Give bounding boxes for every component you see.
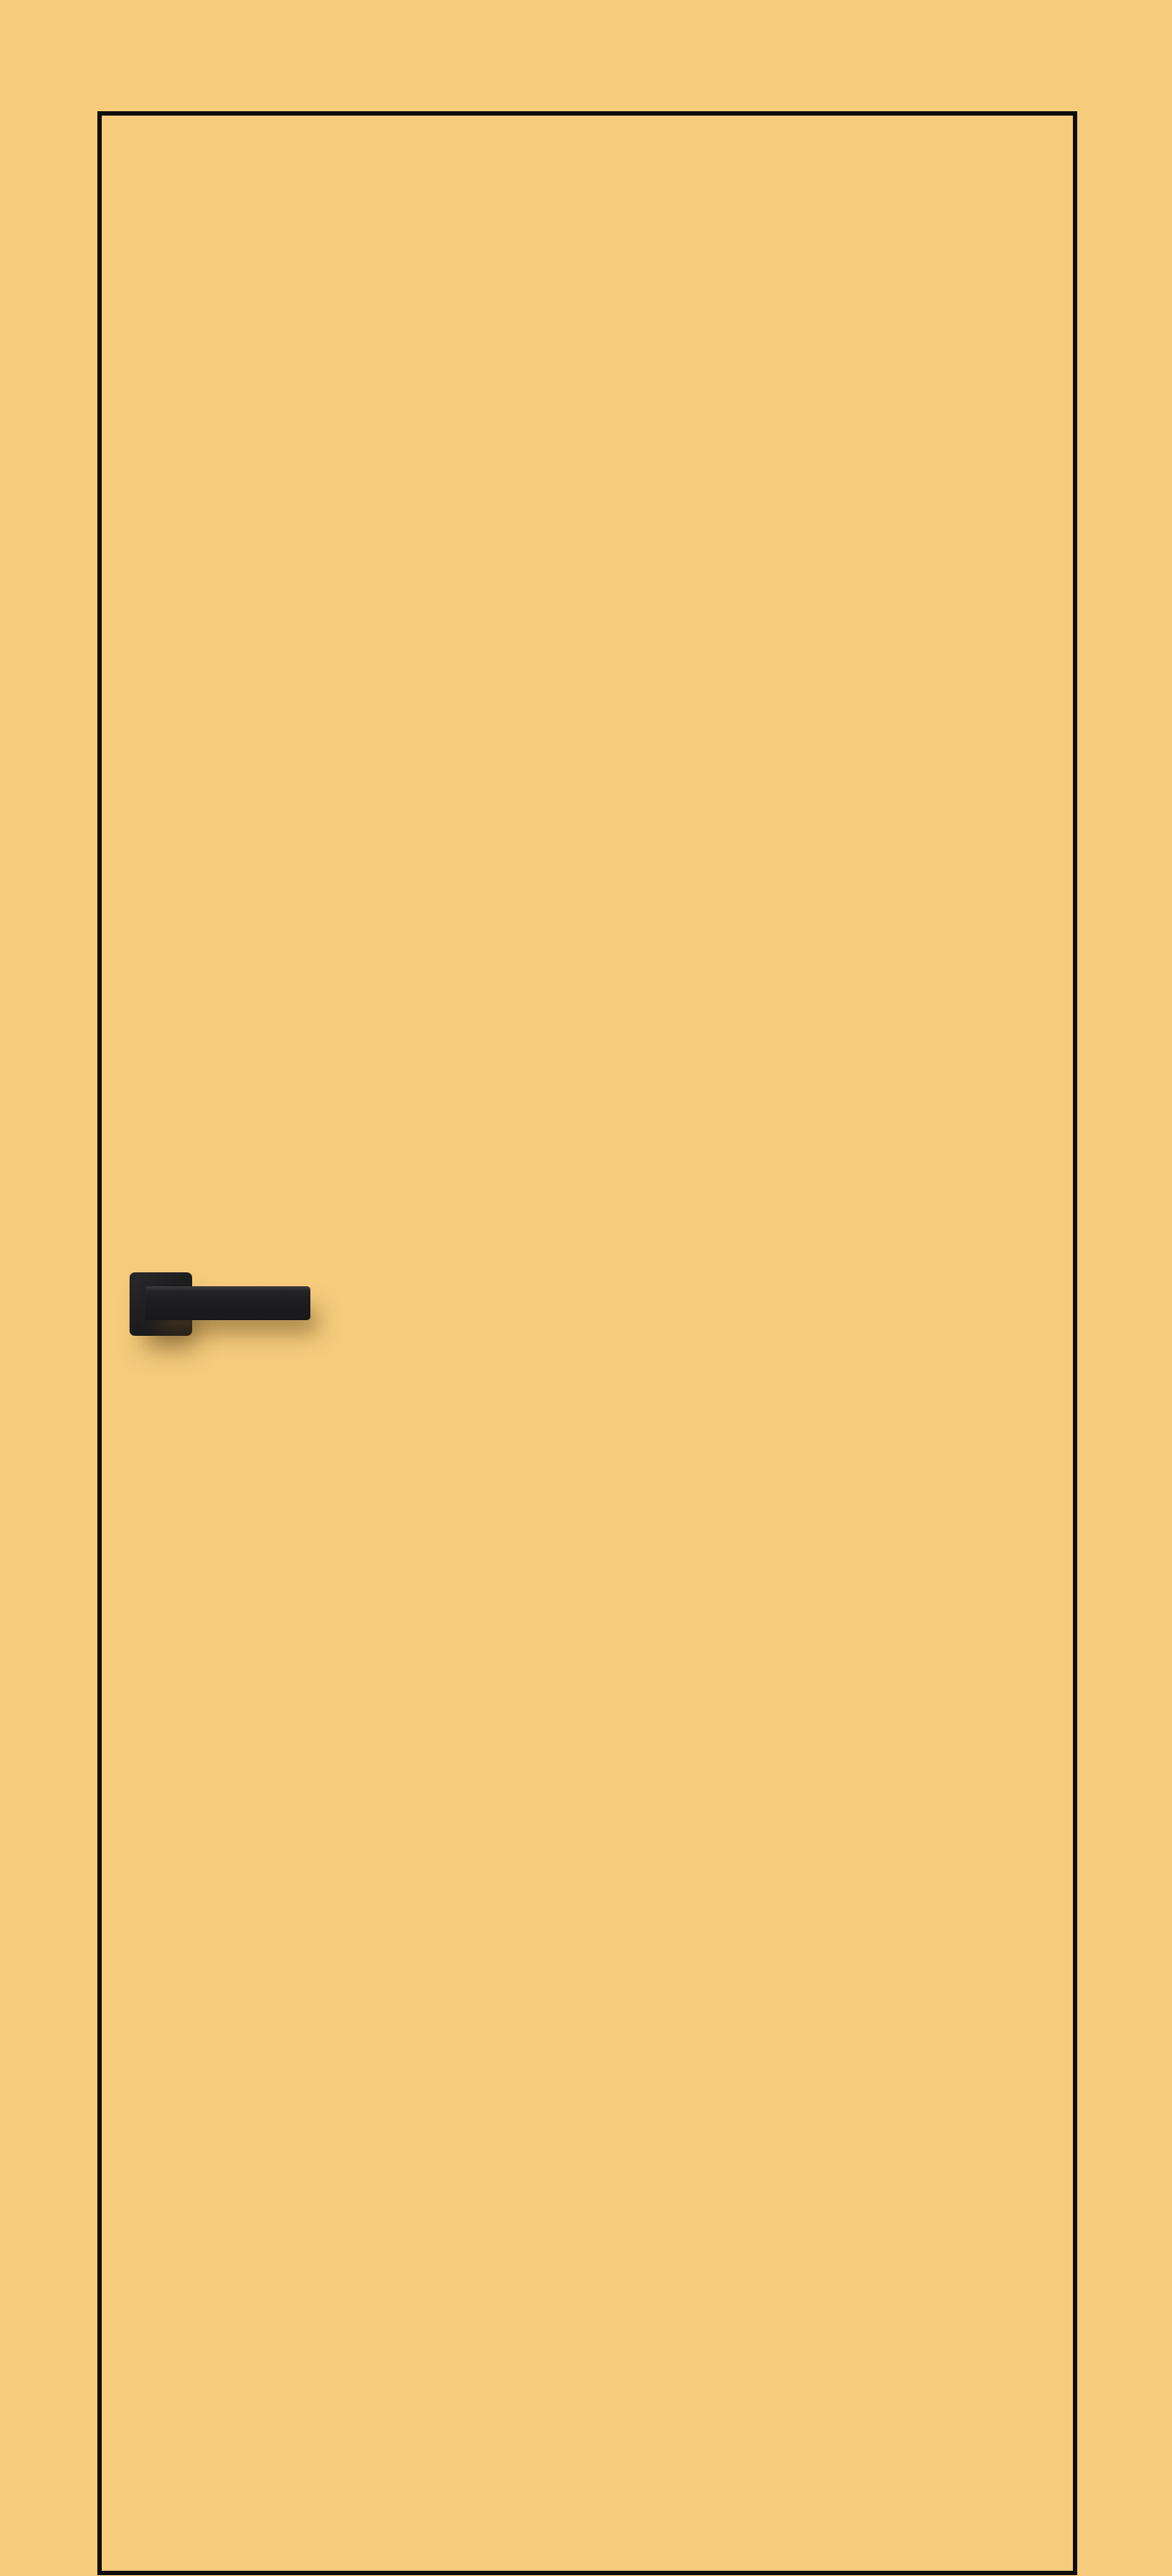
door-leaf <box>97 111 1077 2575</box>
handle-rosette <box>130 1272 192 1336</box>
handle-lever <box>145 1286 310 1320</box>
door-product-image <box>0 0 1172 2576</box>
door-handle <box>102 116 1073 2571</box>
